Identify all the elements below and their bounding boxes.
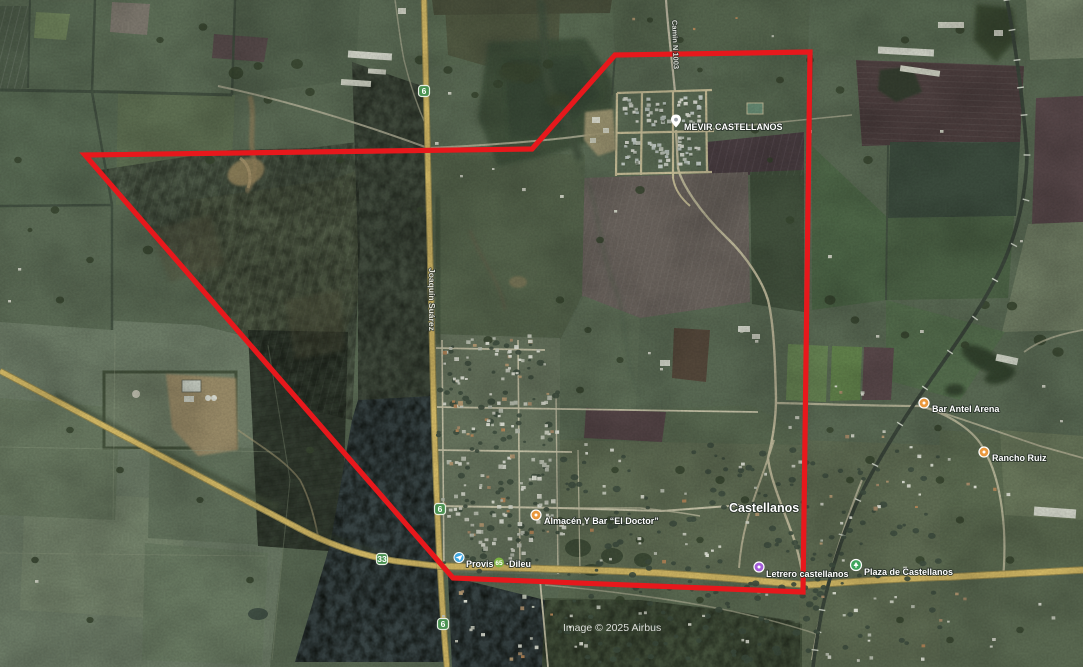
svg-text:6: 6 <box>438 504 443 514</box>
svg-text:·Dileu: ·Dileu <box>506 559 531 569</box>
svg-text:Letrero castellanos: Letrero castellanos <box>766 569 849 579</box>
svg-text:33: 33 <box>377 554 387 564</box>
svg-text:6: 6 <box>422 86 427 96</box>
svg-text:Plaza de Castellanos: Plaza de Castellanos <box>864 567 953 577</box>
svg-text:Joaquín Suárez: Joaquín Suárez <box>427 268 437 331</box>
svg-text:MEVIR CASTELLANOS: MEVIR CASTELLANOS <box>684 122 783 132</box>
svg-text:Rancho Ruiz: Rancho Ruiz <box>992 453 1047 463</box>
svg-text:Bar Antel Arena: Bar Antel Arena <box>932 404 1000 414</box>
svg-text:6: 6 <box>441 619 446 629</box>
svg-text:Camin N 1003: Camin N 1003 <box>670 20 681 69</box>
svg-text:65: 65 <box>495 560 503 567</box>
svg-text:Image © 2025 Airbus: Image © 2025 Airbus <box>563 622 661 634</box>
svg-text:Almacén Y Bar “El Doctor”: Almacén Y Bar “El Doctor” <box>544 516 659 526</box>
svg-text:Provis: Provis <box>466 559 494 569</box>
svg-text:Castellanos: Castellanos <box>729 501 799 515</box>
